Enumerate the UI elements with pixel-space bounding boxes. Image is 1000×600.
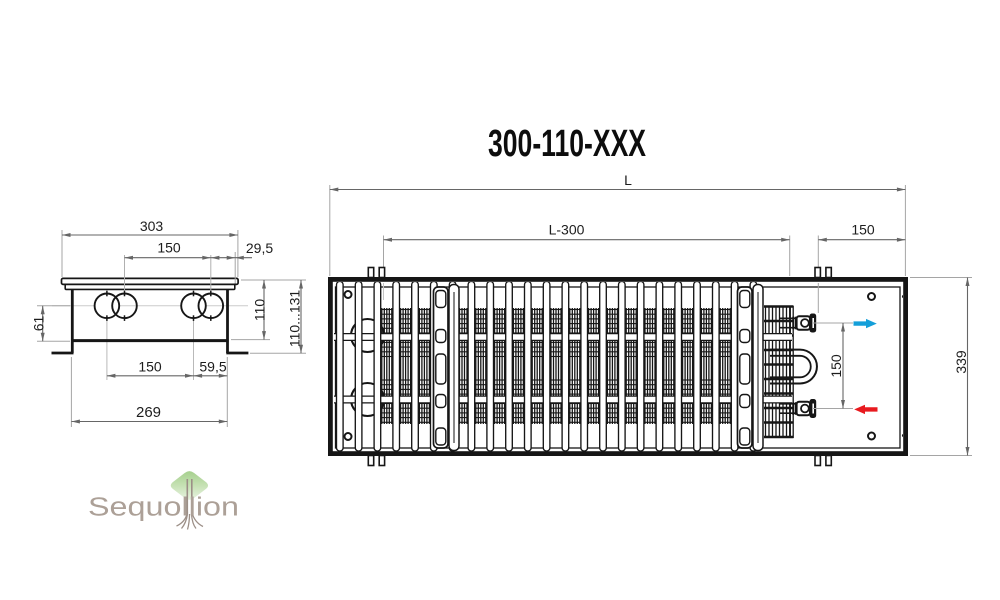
svg-text:61: 61 [31,316,47,332]
svg-text:300-110-XXX: 300-110-XXX [488,123,646,165]
svg-text:303: 303 [140,218,164,234]
svg-text:110: 110 [252,299,268,322]
svg-text:150: 150 [828,354,844,378]
svg-text:29,5: 29,5 [246,240,273,256]
svg-text:150: 150 [157,240,181,256]
svg-text:Sequollion: Sequollion [88,494,239,522]
svg-text:269: 269 [136,404,161,421]
svg-text:339: 339 [953,350,969,374]
svg-text:150: 150 [138,359,162,375]
svg-text:L-300: L-300 [549,222,585,238]
svg-text:110...131: 110...131 [287,290,303,348]
svg-text:59,5: 59,5 [199,359,226,375]
svg-text:150: 150 [851,222,875,238]
svg-text:L: L [624,172,632,188]
